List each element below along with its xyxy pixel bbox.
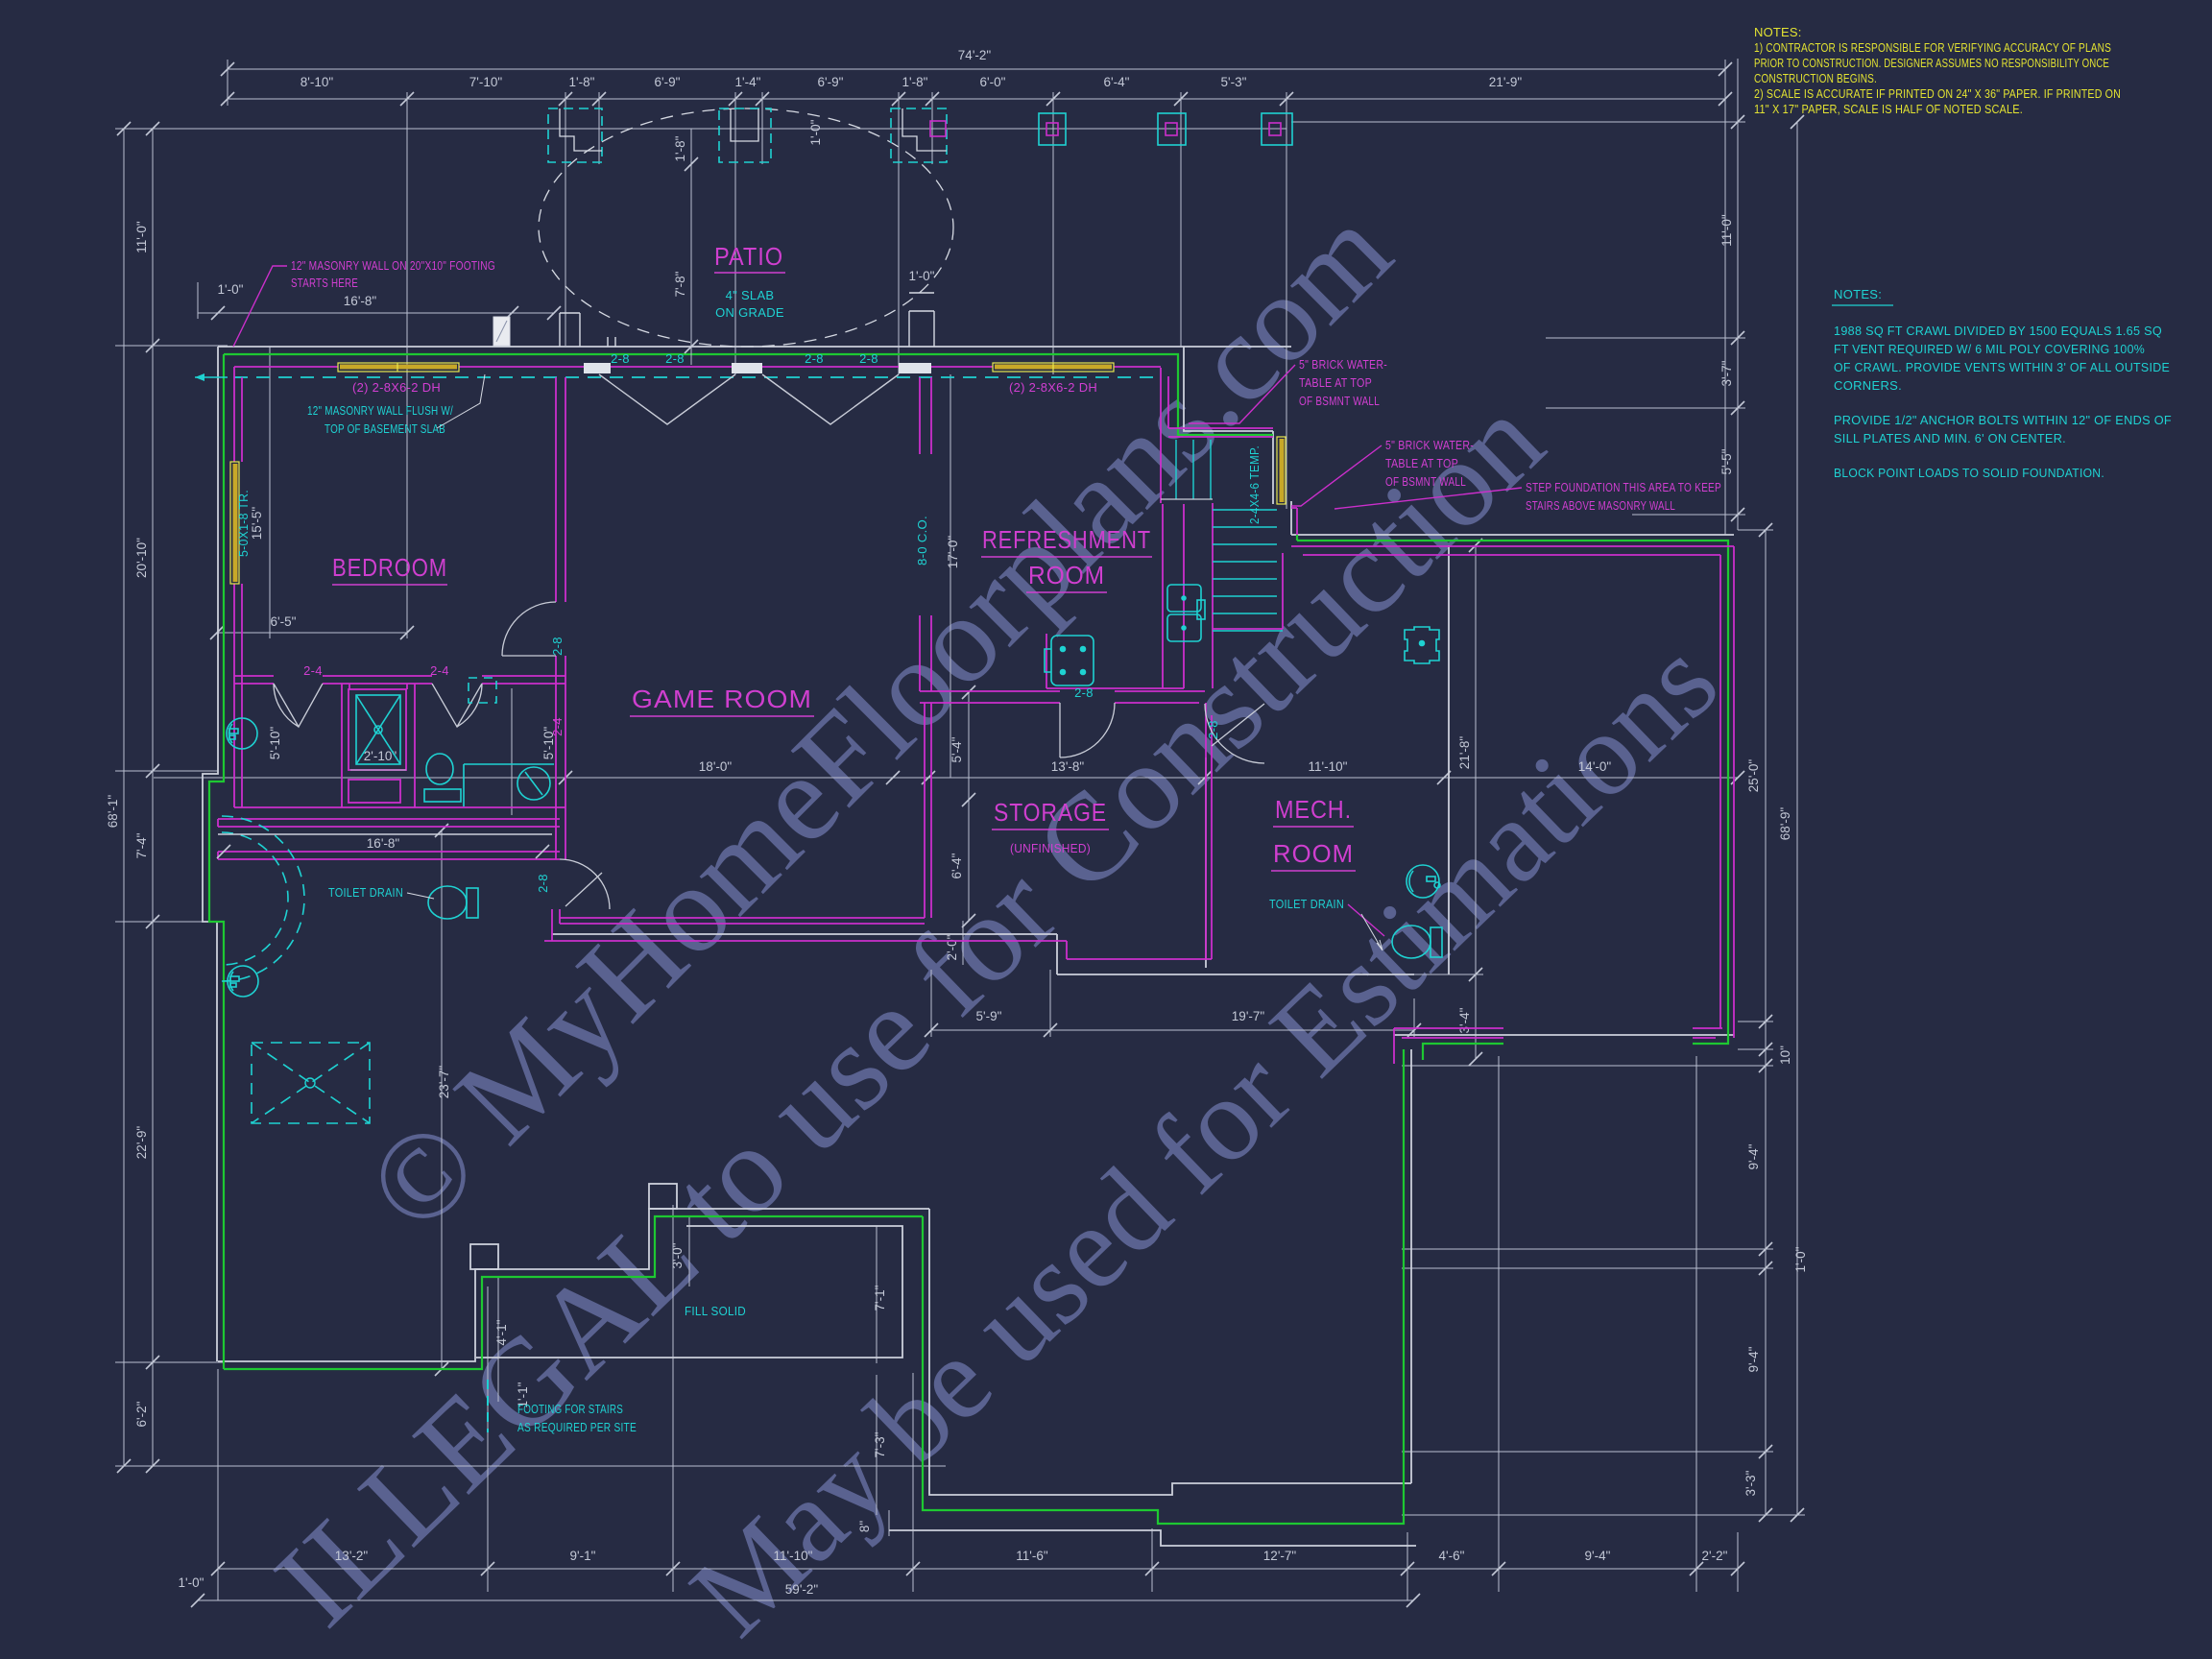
svg-text:2-8: 2-8 bbox=[1074, 685, 1094, 700]
svg-text:5" BRICK WATER-: 5" BRICK WATER- bbox=[1299, 357, 1387, 372]
svg-text:CORNERS.: CORNERS. bbox=[1834, 378, 1902, 393]
svg-text:1'-0": 1'-0" bbox=[1793, 1246, 1808, 1272]
svg-text:4'-1": 4'-1" bbox=[494, 1319, 509, 1345]
svg-text:1'-8": 1'-8" bbox=[673, 135, 687, 161]
svg-text:2-8: 2-8 bbox=[1206, 720, 1220, 739]
svg-text:5'-10": 5'-10" bbox=[268, 727, 282, 760]
svg-text:2-4: 2-4 bbox=[303, 663, 323, 678]
svg-text:5'-3": 5'-3" bbox=[1221, 75, 1247, 89]
svg-text:7'-8": 7'-8" bbox=[673, 271, 687, 297]
svg-text:3'-4": 3'-4" bbox=[1457, 1007, 1472, 1033]
svg-text:21'-9": 21'-9" bbox=[1489, 75, 1523, 89]
svg-text:NOTES:: NOTES: bbox=[1834, 287, 1882, 301]
svg-text:BLOCK POINT LOADS TO SOLID FOU: BLOCK POINT LOADS TO SOLID FOUNDATION. bbox=[1834, 466, 2104, 480]
svg-text:6'-4": 6'-4" bbox=[1104, 75, 1130, 89]
svg-text:10": 10" bbox=[1778, 1046, 1792, 1065]
svg-text:1988 SQ FT CRAWL DIVIDED BY 15: 1988 SQ FT CRAWL DIVIDED BY 1500 EQUALS … bbox=[1834, 324, 2162, 338]
svg-text:2-4: 2-4 bbox=[430, 663, 449, 678]
svg-text:11'-10": 11'-10" bbox=[774, 1549, 813, 1563]
svg-text:OF BSMNT WALL: OF BSMNT WALL bbox=[1385, 474, 1466, 489]
svg-text:25'-0": 25'-0" bbox=[1746, 759, 1761, 793]
svg-text:AS REQUIRED PER SITE: AS REQUIRED PER SITE bbox=[517, 1420, 637, 1434]
svg-text:15'-5": 15'-5" bbox=[250, 507, 264, 541]
svg-text:6'-2": 6'-2" bbox=[134, 1401, 149, 1427]
svg-text:20'-10": 20'-10" bbox=[134, 538, 149, 578]
svg-text:PRIOR TO CONSTRUCTION. DESIGNE: PRIOR TO CONSTRUCTION. DESIGNER ASSUMES … bbox=[1754, 56, 2109, 70]
svg-text:8-0 C.O.: 8-0 C.O. bbox=[915, 516, 929, 565]
svg-text:11'-0": 11'-0" bbox=[134, 221, 149, 253]
svg-text:6'-5": 6'-5" bbox=[271, 614, 297, 629]
svg-text:12'-7": 12'-7" bbox=[1263, 1549, 1297, 1563]
svg-text:11" X 17" PAPER, SCALE IS HALF: 11" X 17" PAPER, SCALE IS HALF OF NOTED … bbox=[1754, 102, 2023, 116]
svg-text:9'-4": 9'-4" bbox=[1585, 1549, 1611, 1563]
svg-text:2-4X4-6 TEMP.: 2-4X4-6 TEMP. bbox=[1247, 445, 1262, 524]
svg-text:TOP OF BASEMENT SLAB: TOP OF BASEMENT SLAB bbox=[325, 421, 445, 436]
svg-text:1'-0": 1'-0" bbox=[179, 1575, 204, 1590]
svg-text:16'-8": 16'-8" bbox=[344, 294, 377, 308]
svg-text:ROOM: ROOM bbox=[1028, 561, 1105, 589]
svg-text:6'-4": 6'-4" bbox=[950, 853, 964, 878]
svg-text:22'-9": 22'-9" bbox=[134, 1126, 149, 1160]
svg-text:12" MASONRY WALL ON 20"X10" FO: 12" MASONRY WALL ON 20"X10" FOOTING bbox=[291, 258, 495, 273]
svg-text:11'-6": 11'-6" bbox=[1016, 1549, 1048, 1563]
svg-text:9'-1": 9'-1" bbox=[570, 1549, 596, 1563]
svg-text:7'-3": 7'-3" bbox=[873, 1431, 887, 1457]
svg-text:5-0X1-8 TR.: 5-0X1-8 TR. bbox=[236, 490, 251, 557]
svg-text:PATIO: PATIO bbox=[714, 242, 783, 271]
svg-text:1'-0": 1'-0" bbox=[218, 282, 244, 297]
svg-text:23'-7": 23'-7" bbox=[437, 1066, 451, 1099]
svg-text:11'-0": 11'-0" bbox=[1719, 214, 1734, 247]
svg-text:1'-4": 1'-4" bbox=[735, 75, 761, 89]
svg-text:12" MASONRY WALL FLUSH W/: 12" MASONRY WALL FLUSH W/ bbox=[307, 403, 453, 418]
svg-text:5" BRICK WATER-: 5" BRICK WATER- bbox=[1385, 438, 1474, 452]
svg-text:(2) 2-8X6-2 DH: (2) 2-8X6-2 DH bbox=[1009, 380, 1097, 395]
svg-text:BEDROOM: BEDROOM bbox=[332, 553, 447, 582]
svg-text:7'-10": 7'-10" bbox=[469, 75, 503, 89]
svg-text:4'-6": 4'-6" bbox=[1439, 1549, 1465, 1563]
svg-text:19'-7": 19'-7" bbox=[1232, 1009, 1265, 1023]
svg-text:CONSTRUCTION BEGINS.: CONSTRUCTION BEGINS. bbox=[1754, 71, 1877, 85]
svg-text:68'-1": 68'-1" bbox=[106, 795, 120, 829]
svg-text:FILL SOLID: FILL SOLID bbox=[685, 1304, 746, 1318]
svg-text:NOTES:: NOTES: bbox=[1754, 25, 1802, 39]
svg-text:ROOM: ROOM bbox=[1273, 839, 1354, 868]
svg-text:18'-0": 18'-0" bbox=[699, 759, 733, 774]
svg-text:1'-0": 1'-0" bbox=[808, 119, 823, 145]
svg-text:4" SLAB: 4" SLAB bbox=[726, 288, 775, 302]
svg-text:OF CRAWL. PROVIDE VENTS WITHIN: OF CRAWL. PROVIDE VENTS WITHIN 3' OF ALL… bbox=[1834, 360, 2170, 374]
svg-text:2-4: 2-4 bbox=[550, 717, 565, 736]
svg-text:9'-4": 9'-4" bbox=[1746, 1346, 1761, 1372]
svg-text:ON GRADE: ON GRADE bbox=[715, 305, 784, 320]
svg-text:(UNFINISHED): (UNFINISHED) bbox=[1010, 841, 1091, 855]
svg-text:2-8: 2-8 bbox=[550, 637, 565, 656]
svg-text:13'-2": 13'-2" bbox=[335, 1549, 369, 1563]
svg-text:(2) 2-8X6-2 DH: (2) 2-8X6-2 DH bbox=[352, 380, 441, 395]
svg-text:59'-2": 59'-2" bbox=[785, 1582, 819, 1597]
svg-text:3'-7": 3'-7" bbox=[1719, 360, 1734, 386]
svg-text:2-8: 2-8 bbox=[805, 351, 824, 366]
svg-text:GAME ROOM: GAME ROOM bbox=[632, 685, 812, 713]
svg-text:MECH.: MECH. bbox=[1275, 795, 1352, 824]
svg-text:OF BSMNT WALL: OF BSMNT WALL bbox=[1299, 394, 1380, 408]
svg-text:REFRESHMENT: REFRESHMENT bbox=[982, 525, 1151, 554]
svg-text:FT VENT REQUIRED W/ 6 MIL POLY: FT VENT REQUIRED W/ 6 MIL POLY COVERING … bbox=[1834, 342, 2145, 356]
svg-text:1) CONTRACTOR IS RESPONSIBLE F: 1) CONTRACTOR IS RESPONSIBLE FOR VERIFYI… bbox=[1754, 40, 2111, 55]
svg-text:2-8: 2-8 bbox=[665, 351, 685, 366]
svg-text:7'-4": 7'-4" bbox=[134, 832, 149, 858]
svg-text:21'-8": 21'-8" bbox=[1457, 736, 1472, 770]
svg-text:2'-2": 2'-2" bbox=[1702, 1549, 1728, 1563]
svg-text:3'-0": 3'-0" bbox=[670, 1242, 685, 1268]
svg-text:2-8: 2-8 bbox=[859, 351, 878, 366]
svg-text:PROVIDE 1/2" ANCHOR BOLTS WITH: PROVIDE 1/2" ANCHOR BOLTS WITHIN 12" OF … bbox=[1834, 413, 2172, 427]
svg-text:STAIRS ABOVE MASONRY WALL: STAIRS ABOVE MASONRY WALL bbox=[1526, 498, 1675, 513]
svg-text:16'-8": 16'-8" bbox=[367, 836, 400, 851]
svg-text:5'-4": 5'-4" bbox=[950, 736, 964, 762]
svg-text:2) SCALE IS ACCURATE IF PRINTE: 2) SCALE IS ACCURATE IF PRINTED ON 24" X… bbox=[1754, 86, 2121, 101]
svg-text:6'-0": 6'-0" bbox=[980, 75, 1006, 89]
svg-text:13'-8": 13'-8" bbox=[1051, 759, 1085, 774]
svg-text:68'-9": 68'-9" bbox=[1778, 807, 1792, 841]
svg-text:2-8: 2-8 bbox=[536, 874, 550, 893]
svg-text:STEP FOUNDATION THIS AREA TO K: STEP FOUNDATION THIS AREA TO KEEP bbox=[1526, 480, 1721, 494]
svg-text:9'-4": 9'-4" bbox=[1746, 1143, 1761, 1169]
svg-text:17'-0": 17'-0" bbox=[946, 536, 960, 569]
svg-text:6'-9": 6'-9" bbox=[818, 75, 844, 89]
svg-text:14'-0": 14'-0" bbox=[1578, 759, 1612, 774]
svg-text:7'-1": 7'-1" bbox=[873, 1285, 887, 1310]
svg-text:2'-0": 2'-0" bbox=[945, 934, 959, 960]
svg-text:TOILET DRAIN: TOILET DRAIN bbox=[328, 885, 403, 900]
svg-text:6'-9": 6'-9" bbox=[655, 75, 681, 89]
svg-text:1'-8": 1'-8" bbox=[569, 75, 595, 89]
svg-text:STARTS HERE: STARTS HERE bbox=[291, 276, 358, 290]
svg-text:74'-2": 74'-2" bbox=[958, 48, 992, 62]
svg-text:FOOTING FOR STAIRS: FOOTING FOR STAIRS bbox=[517, 1402, 623, 1416]
svg-text:5'-9": 5'-9" bbox=[976, 1009, 1002, 1023]
svg-text:TABLE AT TOP: TABLE AT TOP bbox=[1385, 456, 1458, 470]
svg-text:TOILET DRAIN: TOILET DRAIN bbox=[1269, 897, 1344, 911]
svg-text:5'-5": 5'-5" bbox=[1719, 448, 1734, 474]
svg-text:1'-0": 1'-0" bbox=[909, 269, 935, 283]
svg-text:2-8: 2-8 bbox=[611, 351, 630, 366]
svg-text:SILL PLATES AND MIN. 6' ON CEN: SILL PLATES AND MIN. 6' ON CENTER. bbox=[1834, 431, 2066, 445]
svg-text:11'-10": 11'-10" bbox=[1309, 759, 1348, 774]
svg-text:1'-8": 1'-8" bbox=[902, 75, 928, 89]
svg-text:STORAGE: STORAGE bbox=[994, 798, 1107, 827]
svg-text:8": 8" bbox=[857, 1521, 872, 1533]
svg-text:3'-3": 3'-3" bbox=[1743, 1470, 1758, 1496]
svg-text:TABLE AT TOP: TABLE AT TOP bbox=[1299, 375, 1372, 390]
svg-text:8'-10": 8'-10" bbox=[301, 75, 334, 89]
